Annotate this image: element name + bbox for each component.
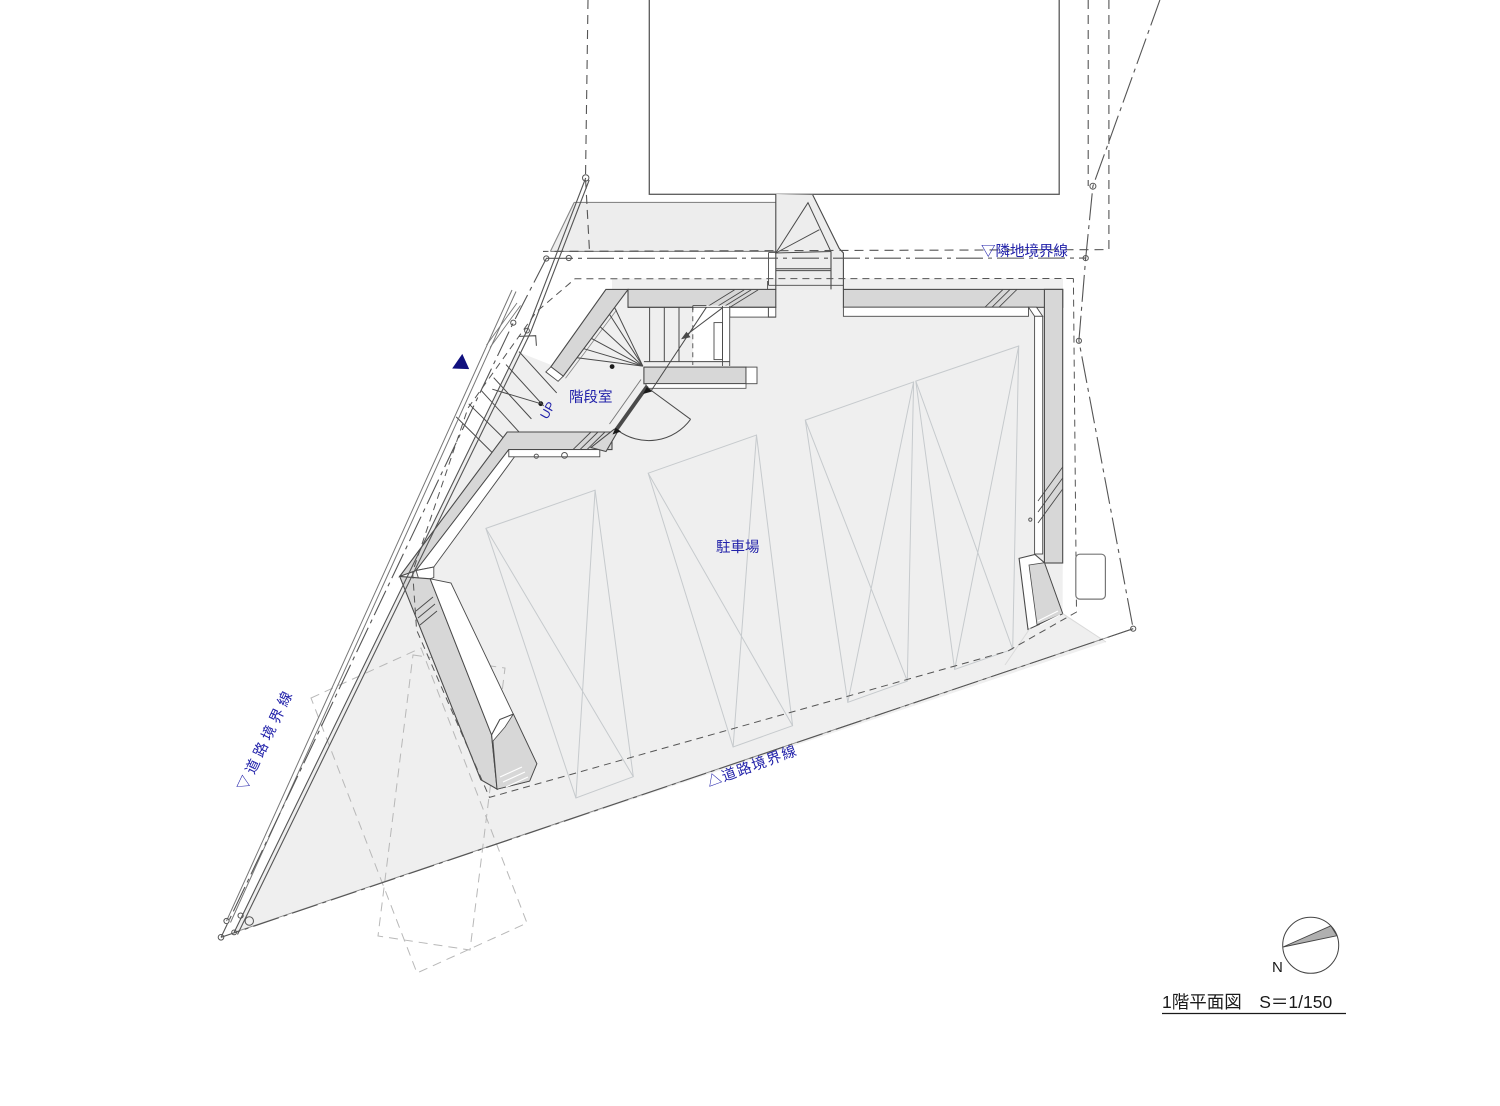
svg-text:▽隣地境界線: ▽隣地境界線 (981, 242, 1068, 260)
svg-text:駐車場: 駐車場 (716, 539, 760, 556)
svg-text:1階平面図 S＝1/150: 1階平面図 S＝1/150 (1162, 992, 1332, 1012)
svg-text:N: N (1272, 959, 1283, 976)
svg-text:階段室: 階段室 (569, 389, 613, 406)
